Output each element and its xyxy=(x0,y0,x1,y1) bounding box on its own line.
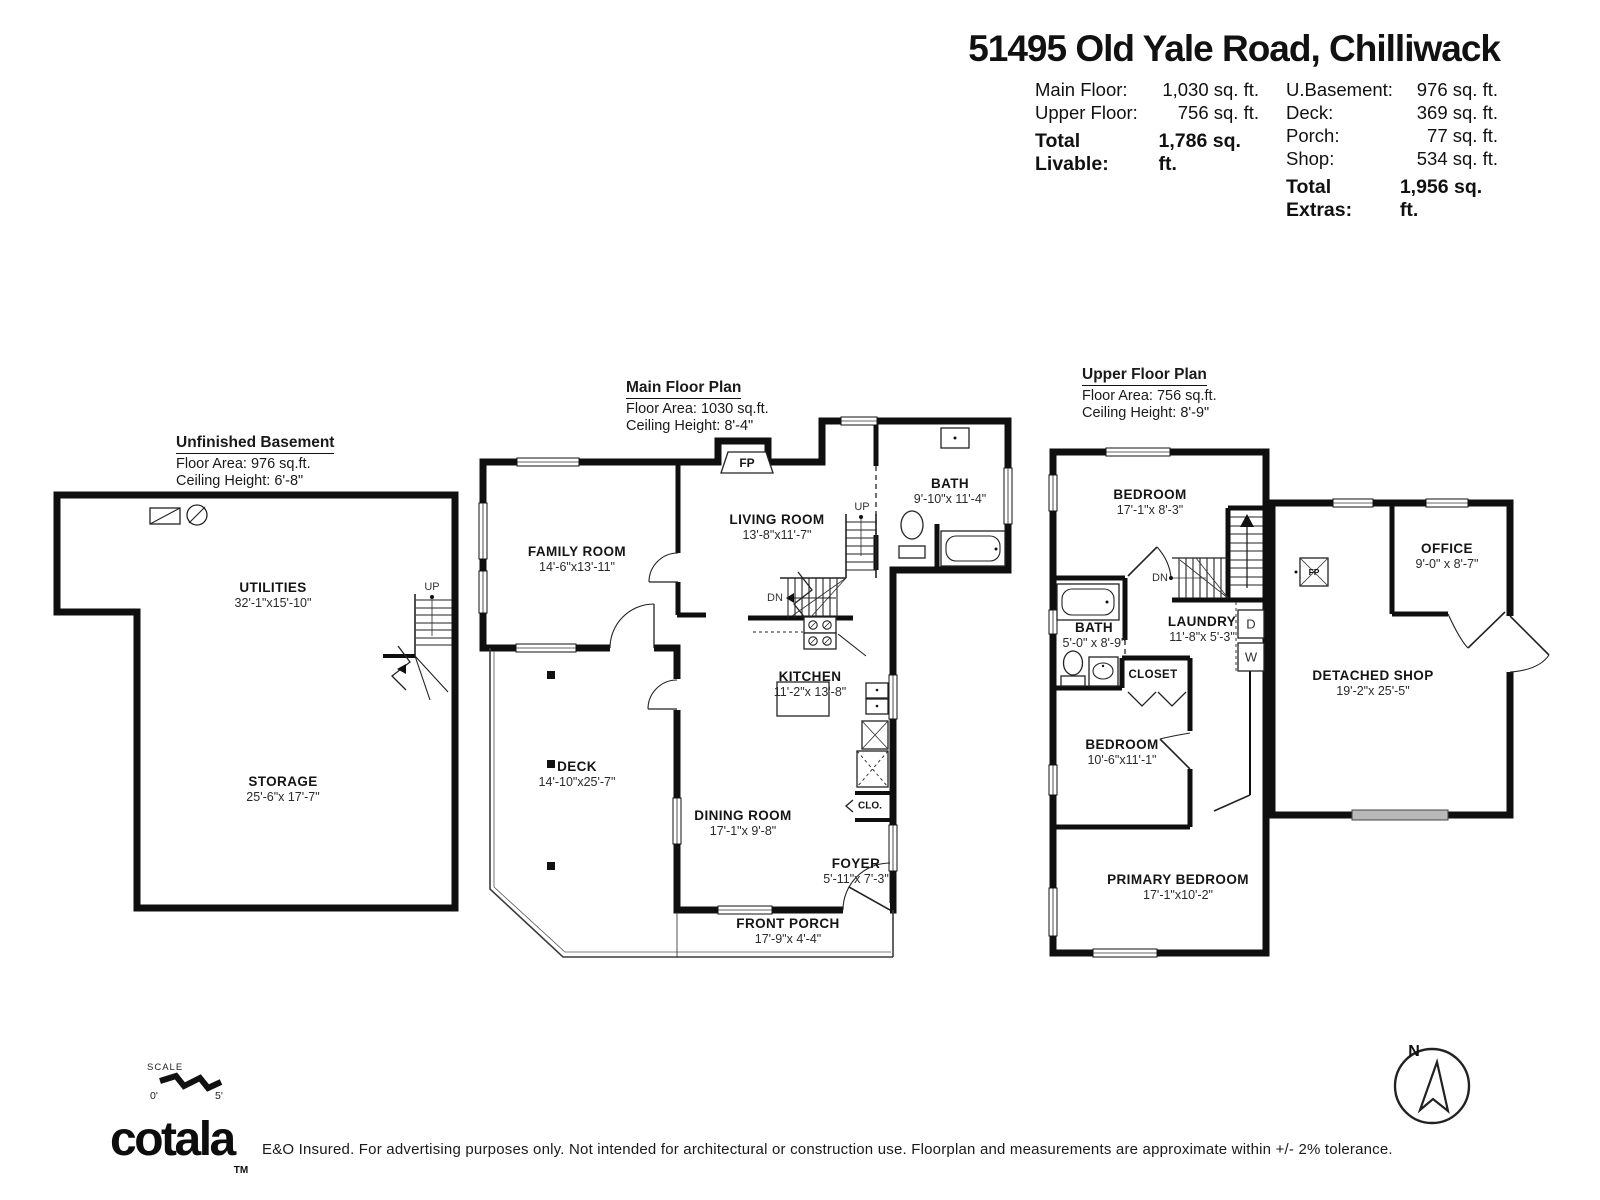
stat-value: 1,030 sq. ft. xyxy=(1162,78,1259,101)
room-label-front-porch: FRONT PORCH 17'-9"x 4'-4" xyxy=(736,916,839,946)
stat-label: U.Basement: xyxy=(1286,78,1393,101)
kitchen-counter-icons xyxy=(857,683,888,787)
scale-five-label: 5' xyxy=(215,1090,223,1102)
plan-title-text: Unfinished Basement xyxy=(176,434,334,454)
stat-label: Main Floor: xyxy=(1035,78,1128,101)
room-label-laundry: LAUNDRY 11'-8"x 5'-3" xyxy=(1168,614,1236,644)
room-label-utilities: UTILITIES 32'-1"x15'-10" xyxy=(235,580,312,610)
livable-stats: Main Floor: 1,030 sq. ft. Upper Floor: 7… xyxy=(1035,78,1259,176)
room-label-deck: DECK 14'-10"x25'-7" xyxy=(539,759,616,789)
floorplan-page: { "header": { "title": "51495 Old Yale R… xyxy=(0,0,1600,1200)
disclaimer-text: E&O Insured. For advertising purposes on… xyxy=(262,1141,1393,1158)
stat-shop: Shop: 534 sq. ft. xyxy=(1286,147,1498,170)
north-arrow-icon xyxy=(1395,1049,1469,1123)
brand-logo: cotalaTM xyxy=(110,1112,248,1176)
basement-plan-title: Unfinished Basement Floor Area: 976 sq.f… xyxy=(176,434,334,491)
basement-up-label: UP xyxy=(424,581,439,593)
scale-label: SCALE xyxy=(147,1062,183,1073)
room-label-primary-bedroom: PRIMARY BEDROOM 17'-1"x10'-2" xyxy=(1107,872,1249,902)
scale-zero-label: 0' xyxy=(150,1090,158,1102)
washer-label: W xyxy=(1245,650,1257,665)
plan-ceiling-text: Ceiling Height: 8'-4" xyxy=(626,418,769,436)
main-dn-label: DN xyxy=(767,592,783,604)
upper-dn-label: DN xyxy=(1152,572,1168,584)
stat-total-extras: Total Extras: 1,956 sq. ft. xyxy=(1286,176,1498,222)
toilet-icon xyxy=(899,511,925,558)
room-label-bath-upper: BATH 5'-0" x 8'-9" xyxy=(1063,620,1126,650)
stat-porch: Porch: 77 sq. ft. xyxy=(1286,124,1498,147)
stat-upper-floor: Upper Floor: 756 sq. ft. xyxy=(1035,101,1259,124)
room-label-bath-main: BATH 9'-10"x 11'-4" xyxy=(914,476,986,506)
property-title: 51495 Old Yale Road, Chilliwack xyxy=(968,28,1500,70)
bath-sink-icon xyxy=(941,428,969,448)
brand-tm: TM xyxy=(234,1165,248,1176)
room-label-family-room: FAMILY ROOM 14'-6"x13'-11" xyxy=(528,544,626,574)
plan-title-text: Main Floor Plan xyxy=(626,379,741,399)
main-plan-title: Main Floor Plan Floor Area: 1030 sq.ft. … xyxy=(626,379,769,436)
plan-area-text: Floor Area: 976 sq.ft. xyxy=(176,456,334,474)
room-label-foyer: FOYER 5'-11"x 7'-3" xyxy=(823,856,889,886)
stat-total-livable: Total Livable: 1,786 sq. ft. xyxy=(1035,130,1259,176)
upper-sink-icon xyxy=(1089,657,1118,686)
closet-bifold-icon xyxy=(1128,692,1186,706)
stove-icon xyxy=(804,617,836,649)
plan-ceiling-text: Ceiling Height: 8'-9" xyxy=(1082,405,1217,423)
main-fp-label: FP xyxy=(739,456,754,470)
stat-label: Porch: xyxy=(1286,124,1339,147)
main-up-label: UP xyxy=(854,501,869,513)
plan-area-text: Floor Area: 756 sq.ft. xyxy=(1082,388,1217,406)
garage-door-icon xyxy=(1352,810,1448,820)
shop-fp-label: FP xyxy=(1309,567,1320,577)
room-label-living-room: LIVING ROOM 13'-8"x11'-7" xyxy=(729,512,824,542)
stat-label: Upper Floor: xyxy=(1035,101,1138,124)
room-label-kitchen: KITCHEN 11'-2"x 13'-8" xyxy=(774,669,846,699)
dryer-label: D xyxy=(1246,617,1255,632)
stat-deck: Deck: 369 sq. ft. xyxy=(1286,101,1498,124)
upper-plan-title: Upper Floor Plan Floor Area: 756 sq.ft. … xyxy=(1082,366,1217,423)
stat-value: 534 sq. ft. xyxy=(1417,147,1498,170)
room-label-bedroom-2: BEDROOM 10'-6"x11'-1" xyxy=(1085,737,1158,767)
basement-stairs-icon xyxy=(383,594,452,700)
room-label-storage: STORAGE 25'-6"x 17'-7" xyxy=(246,774,319,804)
room-label-office: OFFICE 9'-0" x 8'-7" xyxy=(1416,541,1479,571)
electrical-panel-icon xyxy=(150,508,180,524)
stat-label: Deck: xyxy=(1286,101,1333,124)
stat-label: Total Extras: xyxy=(1286,176,1394,222)
stat-label: Total Livable: xyxy=(1035,130,1153,176)
extras-stats: U.Basement: 976 sq. ft. Deck: 369 sq. ft… xyxy=(1286,78,1498,222)
stat-value: 976 sq. ft. xyxy=(1417,78,1498,101)
stat-value: 1,956 sq. ft. xyxy=(1400,176,1498,222)
brand-text: cotala xyxy=(110,1113,234,1166)
main-closet-label: CLO. xyxy=(858,801,882,812)
room-label-dining-room: DINING ROOM 17'-1"x 9'-8" xyxy=(694,808,791,838)
shop-plan-drawing xyxy=(1272,499,1549,820)
stat-value: 1,786 sq. ft. xyxy=(1159,130,1259,176)
plan-title-text: Upper Floor Plan xyxy=(1082,366,1207,386)
basement-plan-drawing xyxy=(57,495,455,908)
stat-label: Shop: xyxy=(1286,147,1334,170)
upper-toilet-icon xyxy=(1061,651,1085,686)
stat-value: 369 sq. ft. xyxy=(1417,101,1498,124)
room-label-closet: CLOSET xyxy=(1128,669,1177,681)
plan-area-text: Floor Area: 1030 sq.ft. xyxy=(626,401,769,419)
bathtub-icon xyxy=(941,531,1005,566)
stat-value: 77 sq. ft. xyxy=(1427,124,1498,147)
drain-icon xyxy=(187,505,207,525)
scale-icon xyxy=(160,1076,221,1088)
room-label-detached-shop: DETACHED SHOP 19'-2"x 25'-5" xyxy=(1312,668,1433,698)
stat-value: 756 sq. ft. xyxy=(1178,101,1259,124)
north-label: N xyxy=(1408,1043,1420,1061)
stat-main-floor: Main Floor: 1,030 sq. ft. xyxy=(1035,78,1259,101)
stat-ubasement: U.Basement: 976 sq. ft. xyxy=(1286,78,1498,101)
upper-bathtub-icon xyxy=(1057,584,1119,620)
room-label-bedroom-1: BEDROOM 17'-1"x 8'-3" xyxy=(1113,487,1186,517)
upper-stairs-icon xyxy=(1169,514,1263,598)
plan-ceiling-text: Ceiling Height: 6'-8" xyxy=(176,473,334,491)
